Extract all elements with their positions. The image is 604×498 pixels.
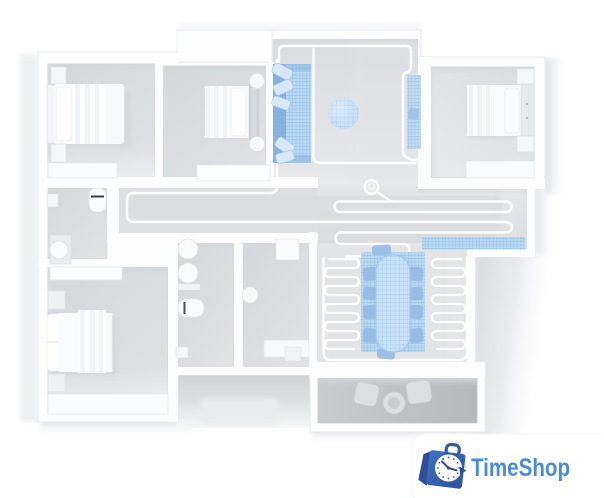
svg-text:TimeShop: TimeShop [471, 454, 570, 482]
